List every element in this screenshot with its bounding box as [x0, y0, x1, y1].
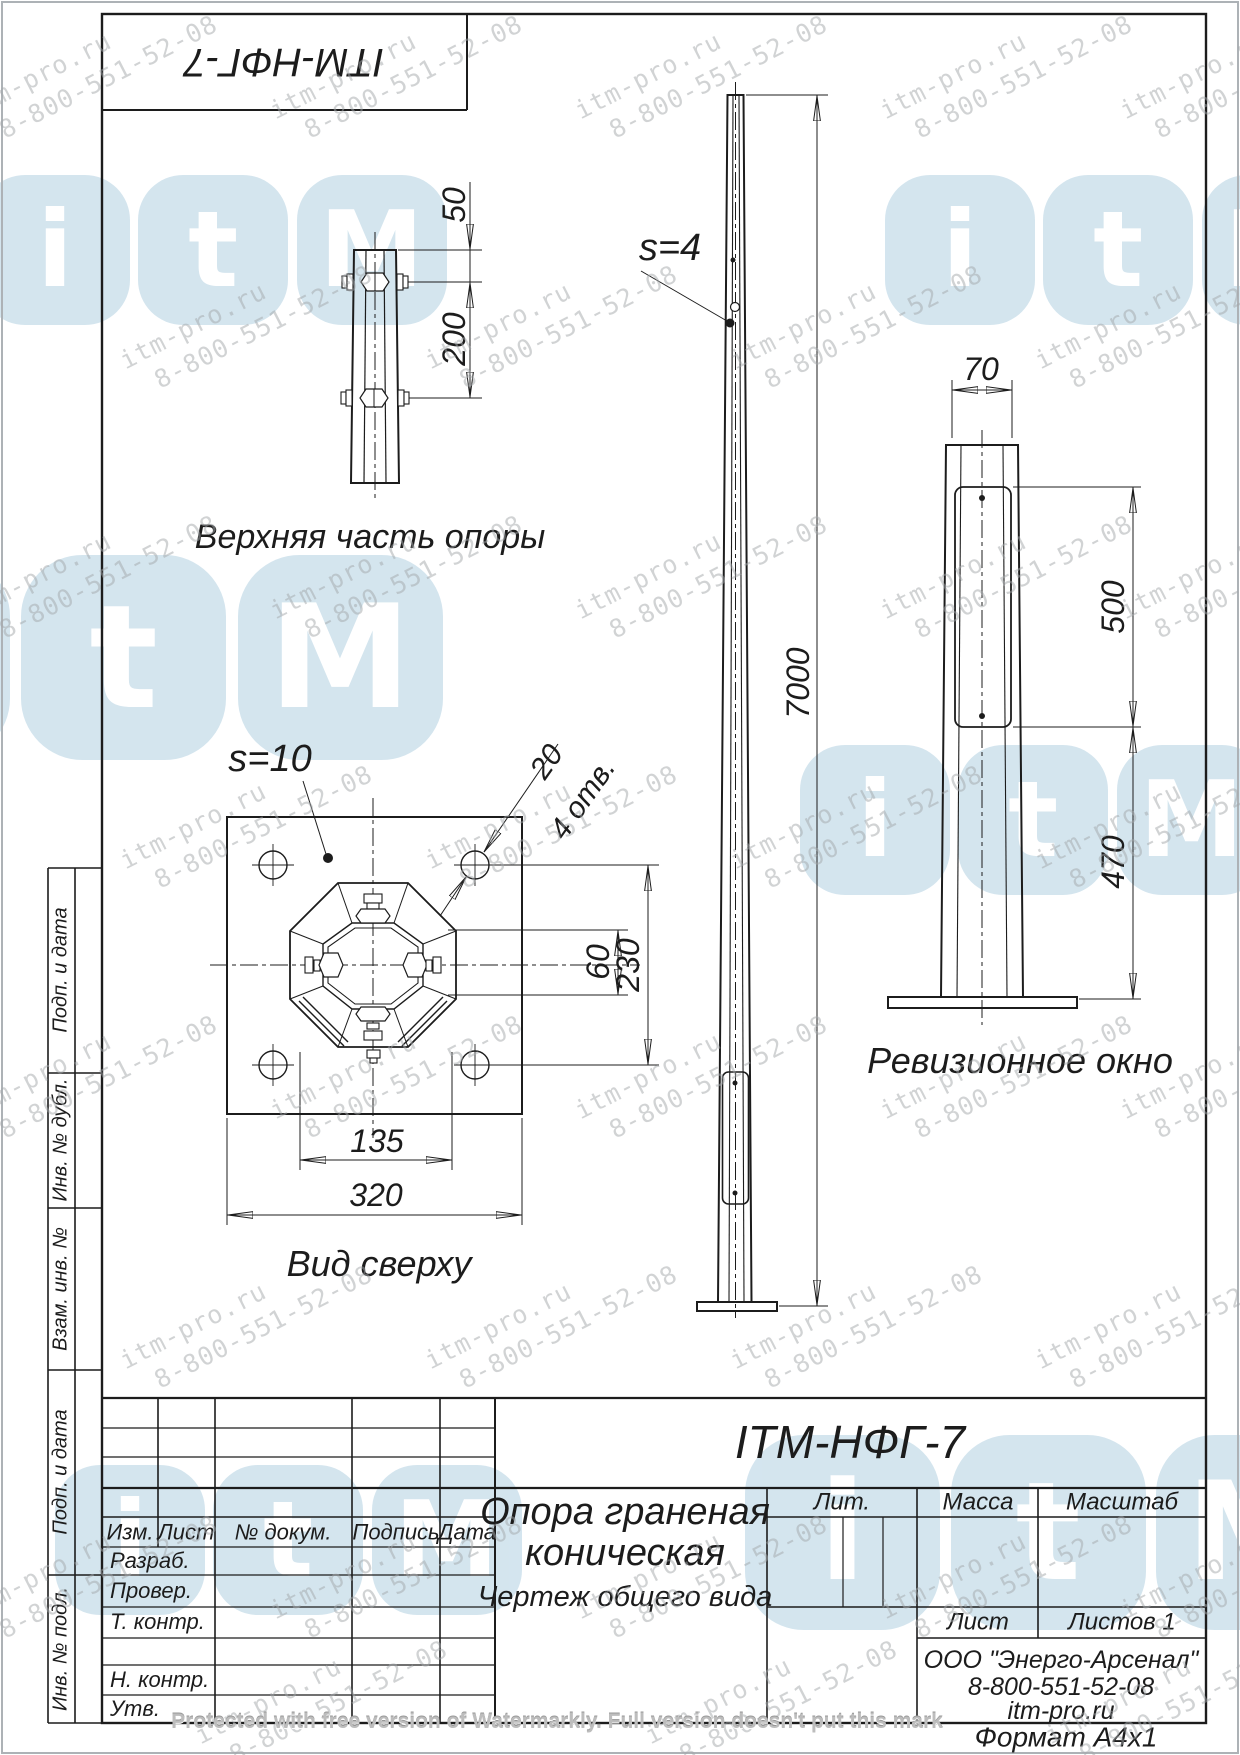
thickness-note-s10: s=10: [228, 740, 311, 780]
upper-view-label: Верхняя часть опоры: [195, 520, 545, 556]
dim-135: 135: [350, 1125, 403, 1159]
dim-470: 470: [1097, 835, 1131, 888]
side-label-inv-podl: Инв. № подл.: [51, 1587, 72, 1711]
top-view: [210, 744, 659, 1225]
mass-label: Масса: [943, 1489, 1014, 1514]
title-doc-type: Чертеж общего вида: [478, 1582, 773, 1612]
scale-label: Масштаб: [1066, 1489, 1178, 1514]
sheets-label: Листов 1: [1068, 1609, 1175, 1634]
title-name-line2: коническая: [525, 1534, 725, 1574]
row-razrab: Разраб.: [110, 1548, 190, 1574]
dim-230: 230: [612, 938, 646, 991]
side-label-podp-data-2: Подп. и дата: [51, 1409, 72, 1534]
rotated-doc-number: ITM-НФГ-7: [184, 41, 384, 83]
row-nkontr: Н. контр.: [110, 1667, 209, 1693]
top-view-label: Вид сверху: [287, 1245, 472, 1283]
sheet-label: Лист: [947, 1609, 1009, 1634]
col-list: Лист: [158, 1520, 215, 1543]
title-doc-number: ITM-НФГ-7: [735, 1418, 965, 1466]
window-view-label: Ревизионное окно: [867, 1042, 1173, 1080]
col-izm: Изм.: [107, 1520, 154, 1543]
watermarkly-protect-note: Protected with free version of Watermark…: [171, 1710, 943, 1734]
dim-7000: 7000: [782, 647, 816, 718]
dim-70: 70: [963, 353, 999, 387]
org-site: itm-pro.ru: [1008, 1698, 1115, 1724]
dim-320: 320: [349, 1179, 402, 1213]
drawing-sheet: i t M i t M i t M i t M i t M i t M: [0, 0, 1240, 1755]
lit-label: Лит.: [814, 1489, 870, 1514]
format-note: Формат А4х1: [975, 1722, 1158, 1751]
side-label-vzam-inv: Взам. инв. №: [51, 1227, 72, 1351]
row-tkontr: Т. контр.: [110, 1609, 205, 1635]
col-doc: № докум.: [235, 1520, 332, 1543]
title-name-line1: Опора граненая: [480, 1493, 770, 1533]
dim-200: 200: [438, 312, 472, 365]
dim-50: 50: [438, 187, 472, 223]
org-name: ООО "Энерго-Арсенал": [924, 1647, 1199, 1673]
window-view: [888, 380, 1141, 1025]
row-utv: Утв.: [110, 1696, 160, 1722]
dim-500: 500: [1097, 580, 1131, 633]
thickness-note-s4: s=4: [639, 229, 701, 269]
side-label-podp-data-1: Подп. и дата: [51, 907, 72, 1032]
side-label-inv-dubl: Инв. № дубл.: [51, 1079, 72, 1202]
row-prover: Провер.: [110, 1578, 192, 1604]
col-date: Дата: [438, 1520, 496, 1543]
col-sign: Подпись: [352, 1520, 439, 1543]
